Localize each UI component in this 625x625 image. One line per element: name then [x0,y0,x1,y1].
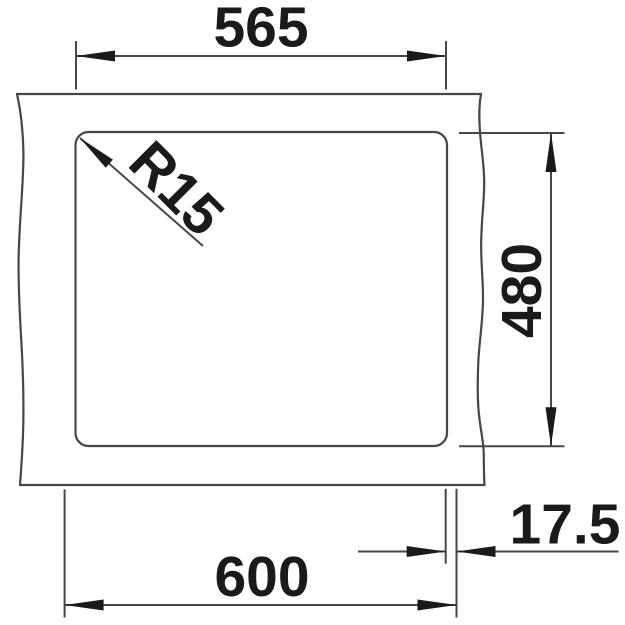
svg-text:17.5: 17.5 [510,493,621,557]
svg-text:565: 565 [213,0,308,60]
svg-text:480: 480 [490,243,554,338]
svg-text:600: 600 [214,545,309,609]
